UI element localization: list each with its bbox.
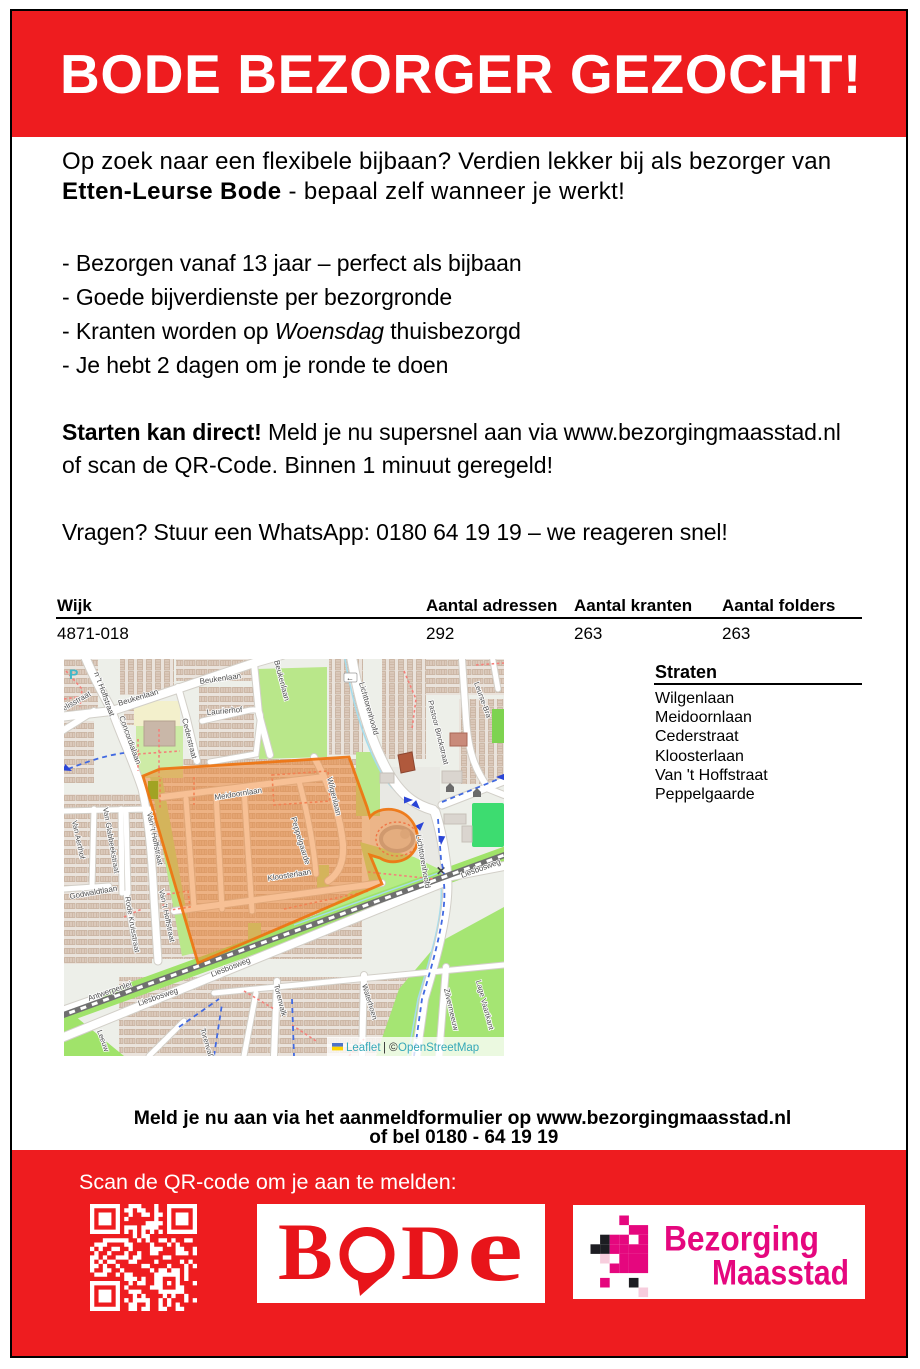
svg-text:e: e <box>467 1204 523 1301</box>
svg-text:| ©: | © <box>383 1042 398 1054</box>
svg-text:Maasstad: Maasstad <box>712 1254 849 1293</box>
svg-text:✕: ✕ <box>436 864 446 878</box>
svg-text:OpenStreetMap: OpenStreetMap <box>398 1042 479 1054</box>
svg-text:Leaflet: Leaflet <box>346 1042 381 1054</box>
svg-text:D: D <box>401 1209 462 1296</box>
svg-text:B: B <box>278 1206 333 1297</box>
svg-text:←: ← <box>346 674 354 683</box>
svg-text:P: P <box>69 666 78 682</box>
